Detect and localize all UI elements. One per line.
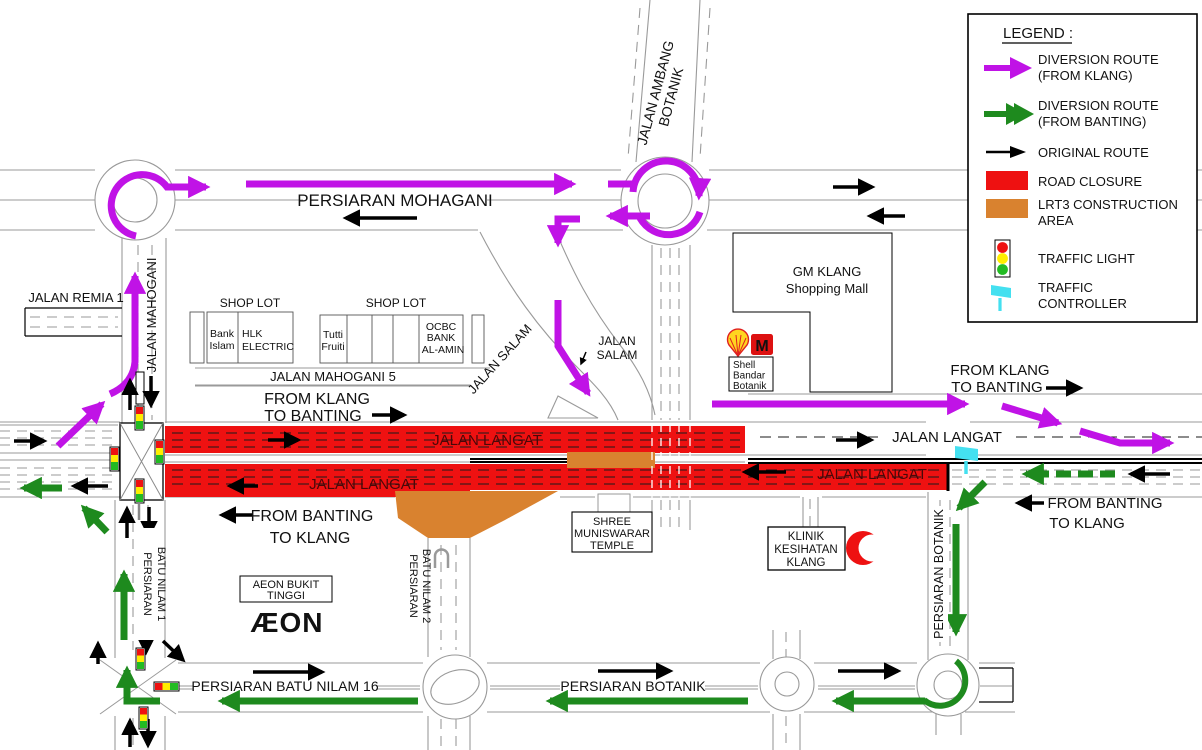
shell-icon — [728, 329, 749, 356]
legend: LEGEND : DIVERSION ROUTE (FROM KLANG) DI… — [968, 14, 1197, 322]
svg-text:BATU NILAM 1: BATU NILAM 1 — [155, 547, 167, 621]
legend-title: LEGEND : — [1003, 25, 1073, 42]
road-jalan-salam — [480, 232, 655, 420]
label-jalan-mahogani: JALAN MAHOGANI — [144, 258, 159, 373]
svg-text:Fruiti: Fruiti — [321, 341, 344, 353]
road-closure-swatch — [986, 171, 1028, 190]
svg-text:Tutti: Tutti — [323, 329, 343, 341]
svg-text:TO KLANG: TO KLANG — [1049, 515, 1125, 532]
svg-text:LRT3 CONSTRUCTION: LRT3 CONSTRUCTION — [1038, 197, 1178, 212]
label-bank-islam: Bank Islam — [209, 328, 234, 352]
svg-text:GM KLANG: GM KLANG — [793, 264, 862, 279]
svg-text:KLANG: KLANG — [787, 557, 826, 569]
roundabout-botanik-mid — [760, 657, 814, 711]
svg-text:ROAD CLOSURE: ROAD CLOSURE — [1038, 174, 1142, 189]
svg-text:TO KLANG: TO KLANG — [270, 530, 351, 547]
lrt3-median-area — [567, 452, 655, 468]
label-jalan-ambang-botanik: JALAN AMBANG BOTANIK — [634, 39, 693, 151]
svg-text:PERSIARAN: PERSIARAN — [407, 554, 419, 618]
road-klinik-access — [803, 497, 818, 527]
svg-text:FROM KLANG: FROM KLANG — [264, 391, 370, 408]
svg-text:FROM BANTING: FROM BANTING — [251, 508, 374, 525]
label-jalan-mahogani-5: JALAN MAHOGANI 5 — [270, 369, 396, 384]
svg-text:PERSIARAN: PERSIARAN — [141, 552, 153, 616]
svg-text:HLK: HLK — [242, 328, 262, 340]
label-shop-lot-west: SHOP LOT — [220, 296, 281, 310]
traffic-light-icon — [139, 707, 148, 729]
label-from-banting-east: FROM BANTING TO KLANG — [1048, 495, 1163, 532]
svg-text:SALAM: SALAM — [597, 348, 638, 362]
traffic-light-icon-horizontal — [154, 682, 179, 691]
svg-text:ORIGINAL ROUTE: ORIGINAL ROUTE — [1038, 145, 1149, 160]
traffic-light-icon — [135, 406, 144, 430]
legend-item-original-route: ORIGINAL ROUTE — [986, 145, 1149, 160]
svg-text:AL-AMIN: AL-AMIN — [422, 344, 465, 356]
svg-text:JALAN: JALAN — [598, 334, 635, 348]
svg-text:Shell: Shell — [733, 360, 755, 371]
lrt3-swatch — [986, 199, 1028, 218]
svg-text:(FROM KLANG): (FROM KLANG) — [1038, 68, 1133, 83]
legend-item-road-closure: ROAD CLOSURE — [986, 171, 1142, 190]
traffic-light-icon — [110, 447, 119, 471]
road-jalan-remia-1 — [25, 308, 122, 336]
diversion-map: M — [0, 0, 1202, 750]
roundabout-batu-nilam-2-south — [423, 655, 487, 719]
svg-text:MUNISWARAR: MUNISWARAR — [574, 528, 650, 540]
svg-text:FROM KLANG: FROM KLANG — [950, 362, 1049, 379]
svg-text:KLINIK: KLINIK — [788, 531, 825, 543]
label-persiaran-botanik-bottom: PERSIARAN BOTANIK — [560, 678, 706, 694]
svg-text:Botanik: Botanik — [733, 381, 767, 392]
svg-text:Bank: Bank — [210, 328, 235, 340]
lrt3-batu-nilam-2-area — [395, 491, 558, 538]
traffic-light-icon — [136, 648, 145, 670]
label-jalan-langat-open-east: JALAN LANGAT — [892, 429, 1002, 446]
svg-text:TEMPLE: TEMPLE — [590, 540, 634, 552]
traffic-light-icon — [155, 440, 164, 464]
svg-text:SHREE: SHREE — [593, 516, 631, 528]
label-from-klang-west: FROM KLANG TO BANTING — [264, 391, 370, 425]
label-jalan-langat-closed-east: JALAN LANGAT — [432, 432, 542, 449]
label-persiaran-botanik-vertical: PERSIARAN BOTANIK — [932, 509, 946, 639]
diversion-map-page: M — [0, 0, 1202, 750]
svg-text:CONTROLLER: CONTROLLER — [1038, 296, 1127, 311]
svg-text:TO BANTING: TO BANTING — [951, 379, 1042, 396]
svg-text:TRAFFIC: TRAFFIC — [1038, 280, 1093, 295]
label-jalan-salam-horizontal: JALAN SALAM — [597, 334, 638, 362]
svg-text:KESIHATAN: KESIHATAN — [774, 544, 837, 556]
svg-text:Bandar: Bandar — [733, 371, 766, 382]
svg-text:FROM BANTING: FROM BANTING — [1048, 495, 1163, 512]
temple-connector — [598, 494, 630, 512]
label-persiaran-mohagani: PERSIARAN MOHAGANI — [297, 191, 493, 210]
mcdonalds-m: M — [755, 338, 768, 355]
label-from-banting-west: FROM BANTING TO KLANG — [251, 508, 374, 547]
svg-text:TO BANTING: TO BANTING — [264, 408, 362, 425]
mcdonalds-icon: M — [751, 334, 773, 355]
label-jalan-langat-closed-west: JALAN LANGAT — [309, 476, 419, 493]
label-persiaran-batu-nilam-16: PERSIARAN BATU NILAM 16 — [191, 678, 378, 694]
svg-text:BANK: BANK — [427, 332, 456, 344]
svg-text:TINGGI: TINGGI — [267, 590, 305, 602]
aeon-logo: ÆON — [251, 607, 324, 638]
svg-text:PERSIARAN BOTANIK: PERSIARAN BOTANIK — [932, 509, 946, 639]
svg-text:DIVERSION ROUTE: DIVERSION ROUTE — [1038, 98, 1159, 113]
signal-pole — [136, 372, 144, 404]
svg-text:Shopping Mall: Shopping Mall — [786, 281, 868, 296]
label-persiaran-batu-nilam-2: PERSIARAN BATU NILAM 2 — [407, 549, 432, 623]
svg-text:DIVERSION ROUTE: DIVERSION ROUTE — [1038, 52, 1159, 67]
svg-text:(FROM BANTING): (FROM BANTING) — [1038, 114, 1146, 129]
label-tutti-fruiti: Tutti Fruiti — [321, 329, 344, 353]
label-jalan-remia-1: JALAN REMIA 1 — [28, 290, 123, 305]
label-shop-lot-east: SHOP LOT — [366, 296, 427, 310]
red-crescent-icon — [846, 531, 886, 565]
svg-text:JALAN MAHOGANI: JALAN MAHOGANI — [144, 258, 159, 373]
svg-text:AREA: AREA — [1038, 213, 1074, 228]
svg-text:ELECTRIC: ELECTRIC — [242, 341, 294, 353]
svg-text:TRAFFIC LIGHT: TRAFFIC LIGHT — [1038, 251, 1135, 266]
svg-text:Islam: Islam — [209, 340, 234, 352]
svg-text:BATU NILAM 2: BATU NILAM 2 — [420, 549, 432, 623]
label-jalan-langat-closed-west-right: JALAN LANGAT — [817, 466, 927, 483]
traffic-light-icon — [135, 479, 144, 520]
label-from-klang-east: FROM KLANG TO BANTING — [950, 362, 1049, 396]
